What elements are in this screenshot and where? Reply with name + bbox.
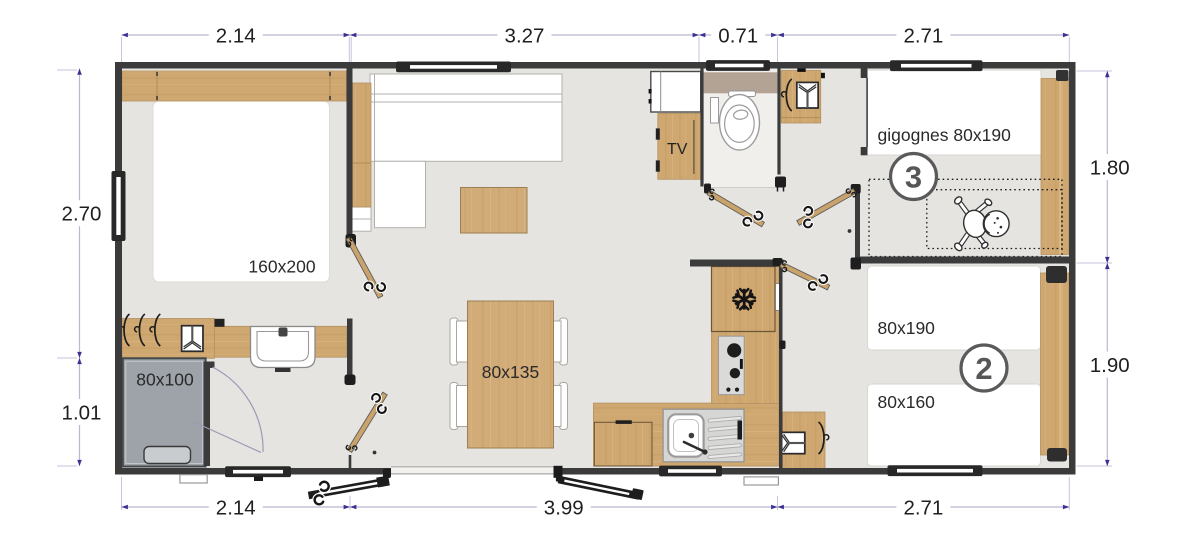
svg-text:160x200: 160x200 (248, 257, 315, 277)
svg-text:80x190: 80x190 (878, 318, 936, 338)
svg-text:2.71: 2.71 (903, 24, 943, 47)
svg-text:80x135: 80x135 (482, 362, 539, 382)
svg-text:1.90: 1.90 (1090, 354, 1130, 377)
svg-text:0.71: 0.71 (718, 24, 758, 47)
svg-text:2: 2 (975, 351, 992, 386)
svg-text:80x160: 80x160 (878, 392, 936, 412)
svg-text:1.01: 1.01 (62, 401, 102, 424)
svg-text:1.80: 1.80 (1090, 156, 1130, 179)
svg-text:2.14: 2.14 (216, 24, 256, 47)
svg-text:3.27: 3.27 (505, 24, 545, 47)
svg-text:3.99: 3.99 (544, 496, 584, 519)
svg-text:80x100: 80x100 (136, 370, 194, 390)
svg-text:2.71: 2.71 (903, 496, 943, 519)
svg-text:2.70: 2.70 (62, 203, 102, 226)
svg-text:2.14: 2.14 (216, 496, 256, 519)
svg-text:TV: TV (667, 141, 688, 158)
svg-text:3: 3 (905, 160, 922, 195)
svg-text:gigognes 80x190: gigognes 80x190 (878, 125, 1012, 145)
